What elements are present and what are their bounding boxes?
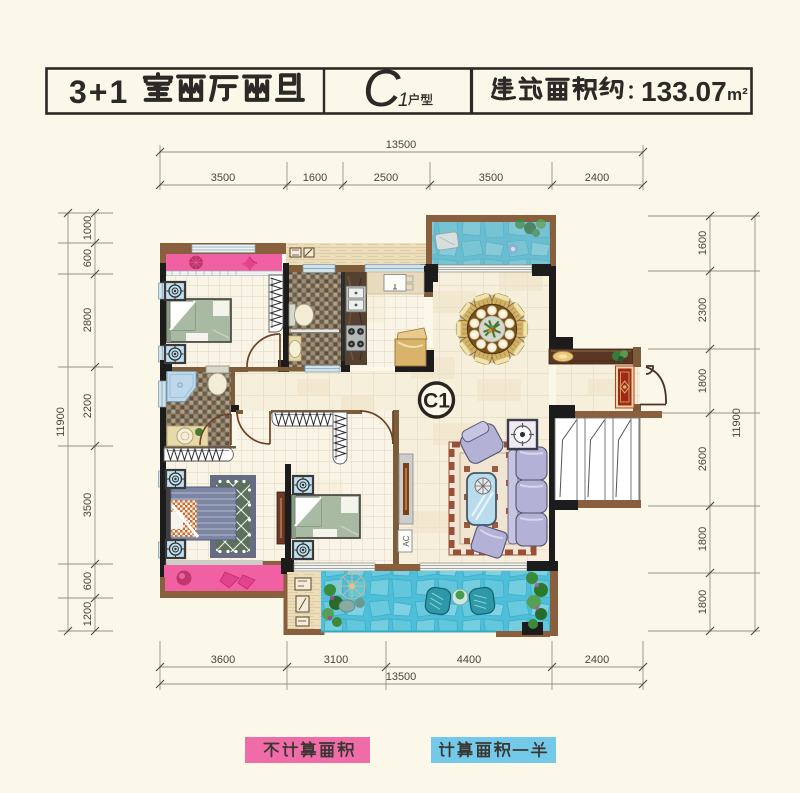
svg-text:2400: 2400	[585, 172, 609, 184]
svg-text:2400: 2400	[585, 654, 609, 666]
svg-text:2500: 2500	[374, 172, 398, 184]
svg-text:13500: 13500	[386, 139, 417, 151]
svg-text:1800: 1800	[697, 590, 709, 614]
svg-text:2600: 2600	[697, 447, 709, 471]
svg-text:2300: 2300	[697, 298, 709, 322]
svg-text:11900: 11900	[731, 408, 743, 438]
svg-text:C: C	[363, 60, 401, 118]
svg-text:4400: 4400	[457, 654, 481, 666]
svg-text:3600: 3600	[211, 654, 235, 666]
svg-text:m²: m²	[727, 85, 748, 104]
svg-text:11900: 11900	[55, 407, 67, 437]
svg-text:3500: 3500	[479, 172, 503, 184]
svg-text:13500: 13500	[386, 671, 417, 683]
svg-text:133.07: 133.07	[641, 76, 727, 107]
svg-text:1600: 1600	[697, 231, 709, 255]
svg-text:AC: AC	[402, 535, 411, 546]
svg-text:3500: 3500	[82, 493, 94, 517]
svg-text:1: 1	[398, 90, 409, 111]
svg-text:3500: 3500	[211, 172, 235, 184]
svg-text:3100: 3100	[324, 654, 348, 666]
svg-text:1200: 1200	[82, 602, 94, 626]
svg-text:600: 600	[82, 249, 94, 267]
svg-text:2800: 2800	[82, 308, 94, 332]
svg-text:C1: C1	[423, 390, 450, 413]
svg-text:1000: 1000	[82, 216, 94, 240]
svg-text:1600: 1600	[303, 172, 327, 184]
svg-text:3+1: 3+1	[69, 74, 129, 110]
svg-text:1800: 1800	[697, 369, 709, 393]
svg-text:600: 600	[82, 572, 94, 590]
svg-text:1800: 1800	[697, 527, 709, 551]
svg-text:2200: 2200	[82, 394, 94, 418]
